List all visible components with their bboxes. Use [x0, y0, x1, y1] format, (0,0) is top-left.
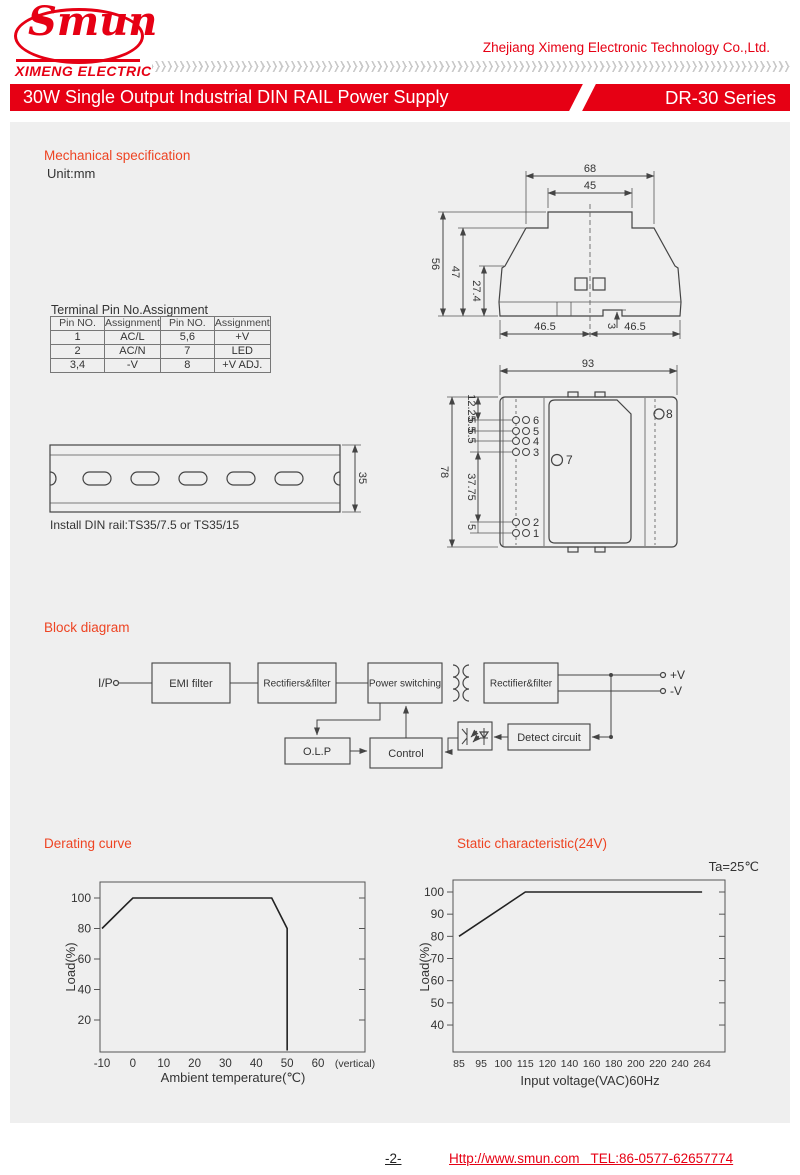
dim-27-4: 27.4 [470, 280, 482, 301]
din-rail-drawing: 35 [40, 440, 375, 530]
col-header: Assignment [214, 317, 270, 331]
table-header-row: Pin NO. Assignment Pin NO. Assignment [51, 317, 271, 331]
pin-numbers: 6 5 4 3 2 1 7 8 [533, 407, 673, 540]
dim-3: 3 [605, 323, 617, 329]
cell: 2 [51, 345, 105, 359]
derating-curve-chart: Ambient temperature(℃) Load(%) 204060801… [55, 855, 405, 1105]
dim-46-5-right: 46.5 [624, 321, 645, 333]
page-number: -2- [385, 1151, 402, 1166]
svg-text:40: 40 [78, 983, 92, 997]
svg-text:220: 220 [649, 1058, 667, 1070]
svg-text:200: 200 [627, 1058, 645, 1070]
logo-subtitle: XIMENG ELECTRIC [15, 63, 152, 79]
static-characteristic-chart: Ta=25℃ Input voltage(VAC)60Hz Load(%) 40… [415, 855, 765, 1105]
cell: 1 [51, 331, 105, 345]
svg-text:140: 140 [561, 1058, 579, 1070]
dimensions: 68 45 56 47 27.4 46.5 46.5 3 [429, 163, 680, 339]
product-title: 30W Single Output Industrial DIN RAIL Po… [23, 84, 449, 111]
svg-text:-10: -10 [94, 1058, 111, 1070]
banner-slash-divider [568, 82, 597, 113]
logo-underline [16, 59, 140, 62]
svg-text:60: 60 [312, 1058, 325, 1070]
emi-filter-block: EMI filter [169, 678, 213, 690]
footer-link[interactable]: Http://www.smun.com TEL:86-0577-62657774 [449, 1151, 733, 1166]
olp-block: O.L.P [303, 746, 331, 758]
rectifiers-filter-block: Rectifiers&filter [263, 679, 331, 690]
cell: +V [214, 331, 270, 345]
section-title-static: Static characteristic(24V) [457, 836, 607, 851]
svg-text:100: 100 [71, 891, 91, 905]
case-front [500, 392, 677, 552]
pin-table-title: Terminal Pin No.Assignment [51, 303, 208, 317]
dim-35: 35 [356, 472, 368, 484]
cell: AC/L [105, 331, 161, 345]
dim-5-5b: 5.5 [465, 428, 477, 443]
table-row: 2 AC/N 7 LED [51, 345, 271, 359]
dim-47: 47 [449, 266, 461, 278]
dim-56: 56 [429, 258, 441, 270]
pin-label-1: 1 [533, 528, 539, 540]
cell: 3,4 [51, 359, 105, 373]
svg-text:160: 160 [583, 1058, 601, 1070]
output-neg-label: -V [670, 684, 682, 698]
title-banner: 30W Single Output Industrial DIN RAIL Po… [10, 84, 790, 111]
svg-text:40: 40 [431, 1018, 445, 1032]
power-switching-block: Power switching [369, 679, 441, 690]
svg-text:40: 40 [250, 1058, 263, 1070]
dim-37-75: 37.75 [465, 473, 477, 501]
col-header: Pin NO. [160, 317, 214, 331]
company-name: Zhejiang Ximeng Electronic Technology Co… [483, 40, 770, 55]
svg-text:70: 70 [431, 952, 445, 966]
svg-text:10: 10 [157, 1058, 170, 1070]
svg-text:(vertical): (vertical) [335, 1058, 375, 1070]
block-diagram: I/P EMI filter Rectifiers&filter Power s… [90, 655, 700, 780]
svg-text:90: 90 [431, 907, 445, 921]
dimensions: 35 [342, 445, 368, 512]
svg-text:80: 80 [431, 929, 445, 943]
pin-label-7: 7 [566, 453, 573, 467]
detect-circuit-block: Detect circuit [517, 732, 581, 744]
led-indicator [552, 455, 563, 466]
svg-text:115: 115 [517, 1058, 534, 1070]
cell: 7 [160, 345, 214, 359]
svg-text:100: 100 [424, 885, 444, 899]
block-boxes: EMI filter Rectifiers&filter Power switc… [152, 663, 558, 703]
cell: +V ADJ. [214, 359, 270, 373]
section-title-block-diagram: Block diagram [44, 620, 130, 635]
x-axis-label: Ambient temperature(℃) [161, 1070, 306, 1085]
svg-text:85: 85 [453, 1058, 465, 1070]
dim-46-5-left: 46.5 [534, 321, 555, 333]
pin-label-3: 3 [533, 447, 539, 459]
dimensions: 93 78 12.25 5.5 5.5 37.75 5 [438, 358, 677, 547]
adjust-pot [654, 409, 664, 419]
series-name: DR-30 Series [665, 84, 776, 111]
section-title-mechanical: Mechanical specification [44, 148, 190, 163]
svg-text:95: 95 [475, 1058, 487, 1070]
control-block: Control [388, 748, 423, 760]
svg-text:240: 240 [671, 1058, 689, 1070]
x-axis-label: Input voltage(VAC)60Hz [520, 1073, 659, 1088]
svg-text:50: 50 [281, 1058, 294, 1070]
cell: AC/N [105, 345, 161, 359]
svg-text:20: 20 [78, 1013, 92, 1027]
svg-text:50: 50 [431, 996, 445, 1010]
section-title-derating: Derating curve [44, 836, 132, 851]
cell: 5,6 [160, 331, 214, 345]
svg-text:180: 180 [605, 1058, 623, 1070]
table-row: 3,4 -V 8 +V ADJ. [51, 359, 271, 373]
unit-note: Unit:mm [47, 166, 95, 181]
svg-text:30: 30 [219, 1058, 232, 1070]
table-row: 1 AC/L 5,6 +V [51, 331, 271, 345]
rail-slots [50, 472, 340, 485]
din-rail-caption: Install DIN rail:TS35/7.5 or TS35/15 [50, 518, 239, 532]
output-pos-label: +V [670, 668, 685, 682]
dim-5: 5 [465, 524, 477, 530]
dim-78: 78 [438, 466, 450, 478]
svg-text:20: 20 [188, 1058, 201, 1070]
front-view-drawing: 6 5 4 3 2 1 7 8 93 78 12.25 5.5 5. [440, 355, 790, 585]
svg-text:60: 60 [431, 974, 445, 988]
svg-text:0: 0 [130, 1058, 136, 1070]
cell: -V [105, 359, 161, 373]
pin-label-8: 8 [666, 407, 673, 421]
rail-outline [50, 445, 340, 512]
cell: 8 [160, 359, 214, 373]
transformer-icon [453, 665, 469, 701]
input-terminal: I/P [98, 676, 152, 690]
svg-text:80: 80 [78, 922, 92, 936]
datasheet-page: Smun XIMENG ELECTRIC Zhejiang Ximeng Ele… [0, 0, 800, 1175]
cell: LED [214, 345, 270, 359]
dim-68: 68 [584, 163, 596, 175]
svg-text:60: 60 [78, 952, 92, 966]
side-view-drawing: 68 45 56 47 27.4 46.5 46.5 3 [430, 160, 790, 360]
chevron-pattern [152, 61, 790, 72]
case-outline [499, 204, 681, 340]
ta-annotation: Ta=25℃ [709, 859, 759, 874]
logo-wordmark: Smun [28, 2, 157, 42]
input-label: I/P [98, 676, 113, 690]
svg-text:120: 120 [539, 1058, 557, 1070]
col-header: Pin NO. [51, 317, 105, 331]
dim-93: 93 [582, 358, 594, 370]
svg-text:100: 100 [494, 1058, 512, 1070]
pin-assignment-table: Pin NO. Assignment Pin NO. Assignment 1 … [50, 316, 271, 373]
rectifier-filter-block: Rectifier&filter [490, 679, 553, 690]
svg-text:264: 264 [693, 1058, 711, 1070]
y-axis-label: Load(%) [63, 942, 78, 991]
dim-45: 45 [584, 180, 596, 192]
feedback-blocks: Detect circuit Control O.L.P [285, 703, 590, 768]
col-header: Assignment [105, 317, 161, 331]
terminal-screws [513, 417, 530, 537]
